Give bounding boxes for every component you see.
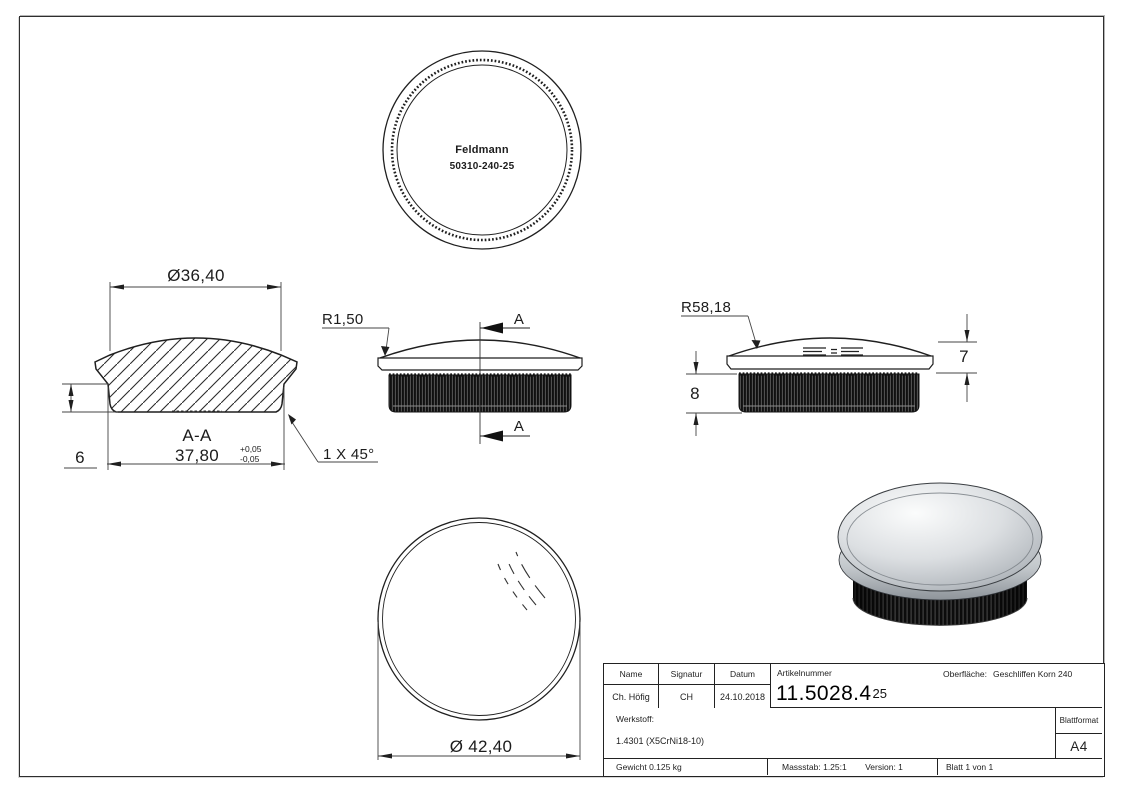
- article-number-suffix: 25: [872, 686, 886, 701]
- author-signature-cell: CH: [659, 685, 715, 708]
- surface-label: Oberfläche:: [943, 669, 987, 679]
- bottom-view-outer-circle: [378, 518, 580, 720]
- author-name-cell: Ch. Höfig: [604, 685, 659, 708]
- tolerance-plus-text: +0,05: [240, 444, 262, 454]
- dim-width-bottom-text: 37,80: [175, 446, 219, 465]
- part-number-text: 50310-240-25: [450, 161, 515, 172]
- side-view: R58,18 7 8: [681, 299, 977, 436]
- radius-r5818-text: R58,18: [681, 299, 731, 316]
- render-3d: [838, 483, 1042, 625]
- header-signature-cell: Signatur: [659, 664, 715, 685]
- bottom-view-reflection-arcs: [498, 552, 545, 610]
- cut-label-bottom-text: A: [514, 418, 524, 435]
- scale-cell: Massstab: 1.25:1 Version: 1: [768, 759, 938, 775]
- radius-r5818-leader: [681, 316, 761, 349]
- header-date-cell: Datum: [715, 664, 771, 685]
- title-block: Name Signatur Datum Ch. Höfig CH 24.10.2…: [603, 663, 1105, 777]
- section-label-text: A-A: [182, 426, 212, 445]
- bottom-view-inner-circle: [383, 523, 576, 716]
- article-number: 11.5028.4: [776, 682, 871, 705]
- tolerance-minus-text: -0,05: [240, 454, 260, 464]
- material-cell: Werkstoff: 1.4301 (X5CrNi18-10): [604, 708, 1056, 759]
- sheet-format-value-cell: A4: [1056, 734, 1102, 759]
- brand-text: Feldmann: [455, 144, 509, 156]
- dim-cap-height-7: [936, 314, 977, 402]
- scale-value: Massstab: 1.25:1: [782, 762, 847, 772]
- weight-cell: Gewicht 0.125 kg: [604, 759, 768, 775]
- article-label: Artikelnummer: [777, 668, 832, 678]
- dim-height-6-text: 6: [75, 448, 85, 467]
- header-name-cell: Name: [604, 664, 659, 685]
- chamfer-text: 1 X 45°: [323, 446, 374, 463]
- section-view-aa: Ø36,40 A-A 37,80 +0,05 -0,05 6 1 X 45°: [62, 266, 378, 470]
- sheet-number-cell: Blatt 1 von 1: [938, 759, 1102, 775]
- surface-value: Geschliffen Korn 240: [993, 669, 1072, 679]
- article-cell: Artikelnummer 11.5028.425 Oberfläche: Ge…: [771, 664, 1102, 708]
- front-view: A A R1,50: [322, 311, 582, 444]
- version-value: Version: 1: [865, 762, 903, 772]
- radius-r150-leader: [322, 328, 390, 356]
- bottom-view: Ø 42,40: [378, 518, 580, 760]
- dim-insert-height-8-text: 8: [690, 384, 700, 403]
- dim-dia-top-text: Ø36,40: [167, 266, 225, 285]
- radius-r150-text: R1,50: [322, 311, 364, 328]
- date-value-cell: 24.10.2018: [715, 685, 771, 708]
- material-label: Werkstoff:: [616, 714, 654, 724]
- render-dome-top: [838, 483, 1042, 591]
- cut-label-top-text: A: [514, 311, 524, 328]
- sheet-format-label-cell: Blattformat: [1056, 708, 1102, 734]
- dim-dia-bottom-text: Ø 42,40: [450, 737, 513, 756]
- top-view: Feldmann 50310-240-25: [383, 51, 581, 249]
- dim-cap-height-7-text: 7: [959, 347, 969, 366]
- material-value: 1.4301 (X5CrNi18-10): [616, 736, 704, 746]
